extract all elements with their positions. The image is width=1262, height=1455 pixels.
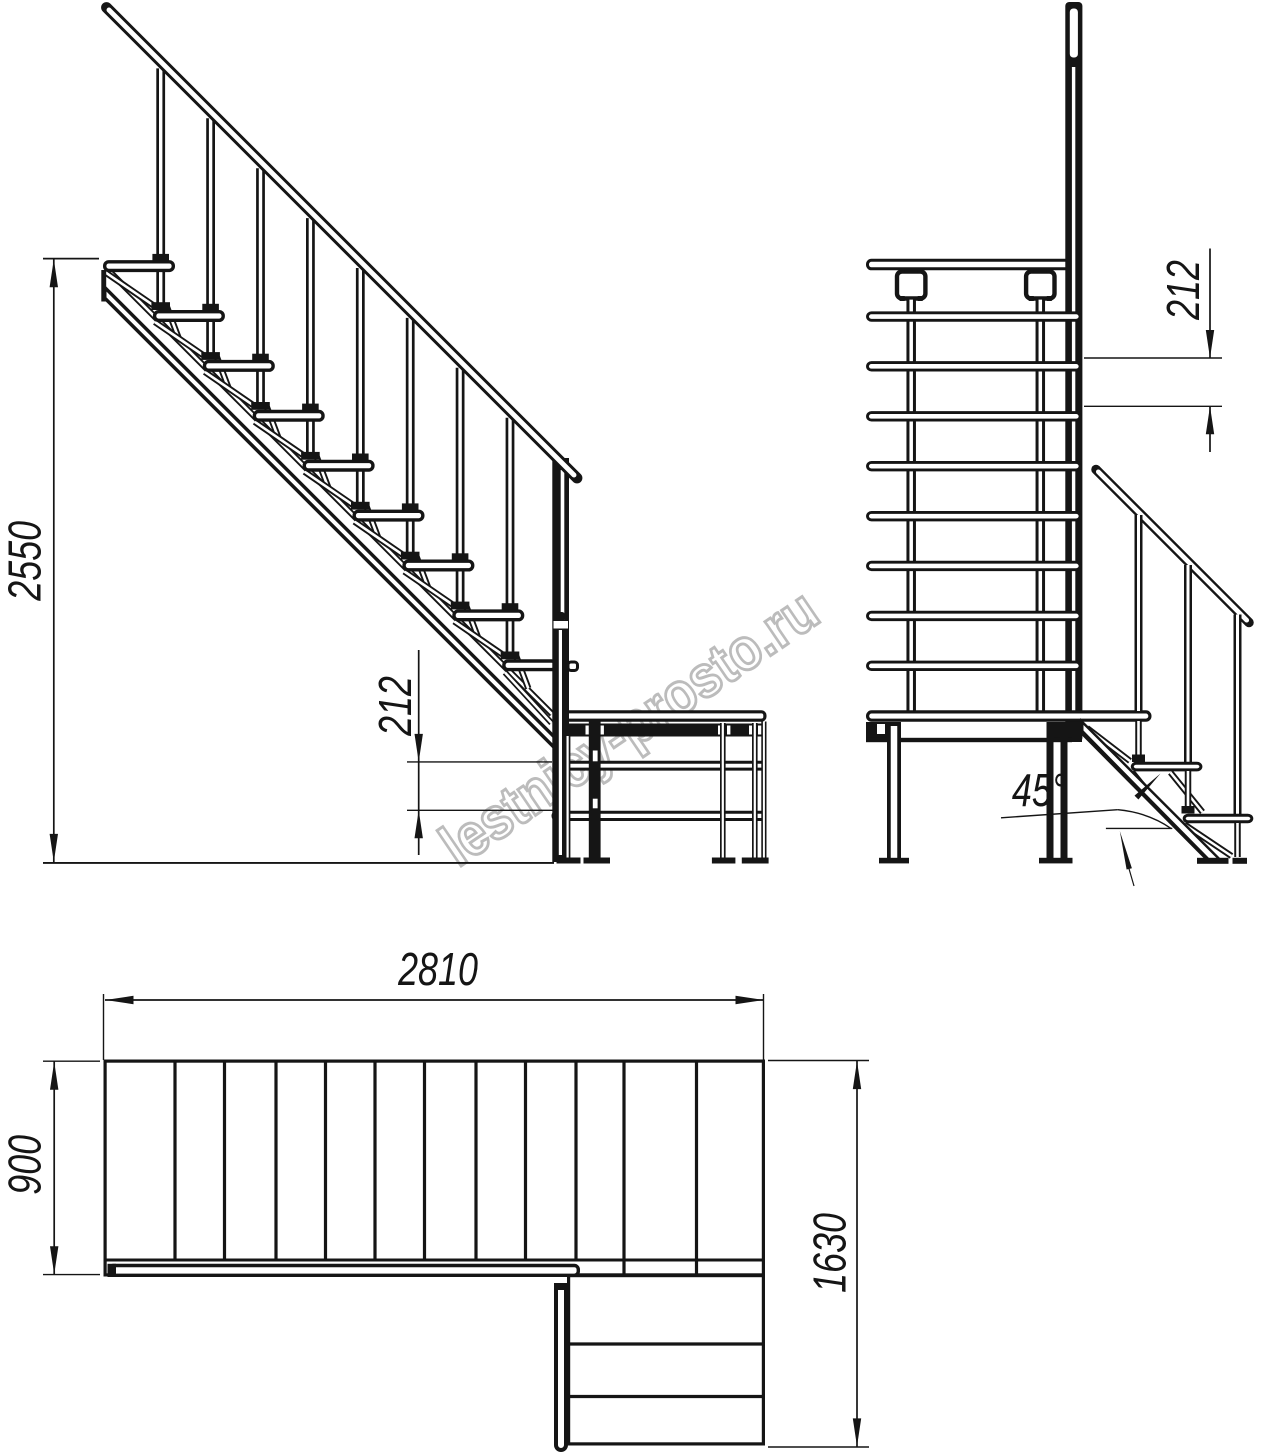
svg-text:212: 212 bbox=[370, 676, 421, 737]
svg-text:45°: 45° bbox=[1012, 765, 1066, 816]
svg-text:900: 900 bbox=[0, 1135, 51, 1195]
svg-text:2550: 2550 bbox=[0, 521, 51, 602]
svg-text:212: 212 bbox=[1158, 260, 1209, 321]
svg-text:1630: 1630 bbox=[804, 1213, 855, 1293]
svg-text:2810: 2810 bbox=[397, 944, 478, 995]
